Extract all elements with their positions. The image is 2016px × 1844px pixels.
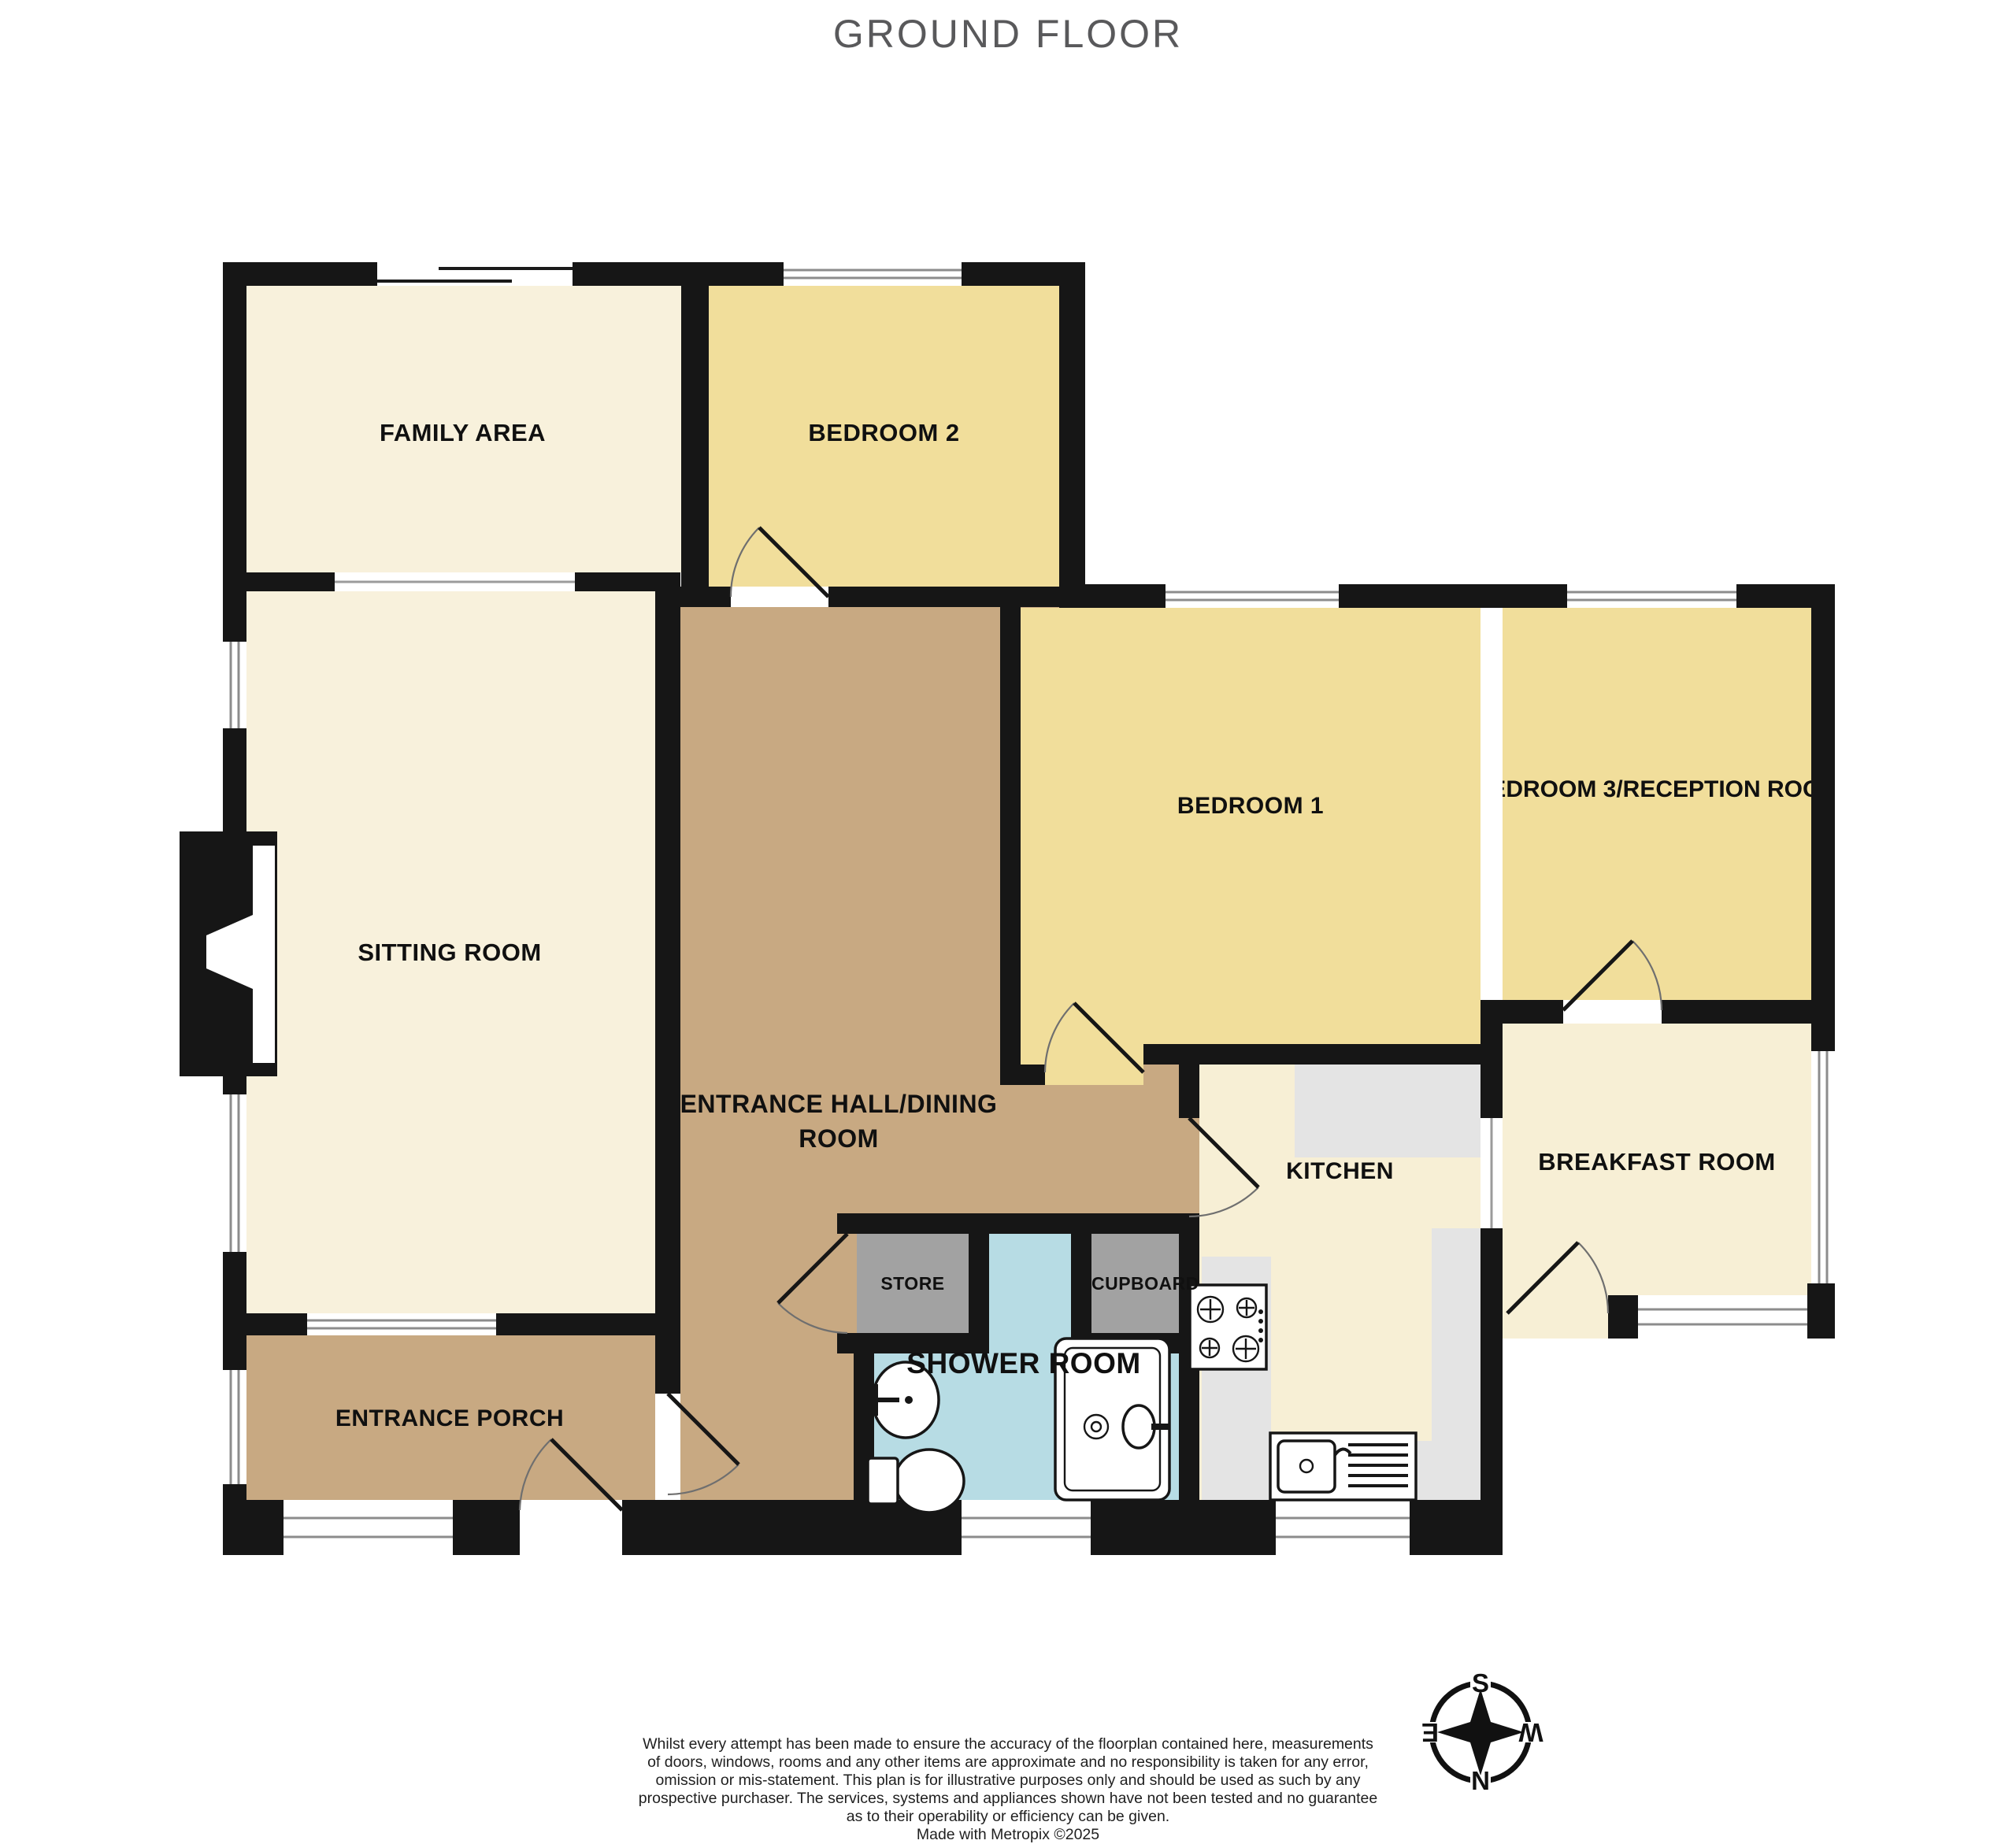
bedroom-3-label: BEDROOM 3/RECEPTION ROOM [1503,776,1811,803]
disclaimer-line: omission or mis-statement. This plan is … [0,1772,2016,1790]
toilet-icon [868,1450,964,1513]
disclaimer-line: prospective purchaser. The services, sys… [0,1790,2016,1808]
entrance-porch-label: ENTRANCE PORCH [244,1405,655,1433]
hob-icon [1190,1285,1266,1369]
store-label: STORE [857,1272,969,1294]
shower-room-label: SHOWER ROOM [866,1350,1181,1378]
bedroom-3-label-clip: BEDROOM 3/RECEPTION ROOM [1503,608,1811,1000]
page-title: GROUND FLOOR [0,11,2016,57]
entrance-hall-label: ENTRANCE HALL/DINING ROOM [583,1087,1095,1156]
disclaimer: Whilst every attempt has been made to en… [0,1735,2016,1844]
metropix-credit: Made with Metropix ©2025 [0,1826,2016,1844]
breakfast-room-label: BREAKFAST ROOM [1503,1148,1811,1176]
sink-icon [1270,1433,1416,1500]
bedroom-2-label: BEDROOM 2 [709,419,1059,447]
disclaimer-line: Whilst every attempt has been made to en… [0,1735,2016,1753]
sitting-room-label: SITTING ROOM [244,939,655,967]
shower-room-neck-floor [989,1234,1071,1353]
floorplan-page: GROUND FLOOR [0,0,2016,1844]
entrance-hall-label-line2: ROOM [583,1121,1095,1156]
bedroom-1-label: BEDROOM 1 [1021,792,1480,820]
disclaimer-line: of doors, windows, rooms and any other i… [0,1753,2016,1772]
entrance-hall-label-line1: ENTRANCE HALL/DINING [583,1087,1095,1121]
disclaimer-line: as to their operability or efficiency ca… [0,1808,2016,1826]
compass-south-label: S [1472,1668,1489,1698]
cupboard-label: CUPBOARD [1091,1272,1179,1294]
bedroom-1-floor [1021,608,1480,1044]
kitchen-counter-top [1295,1065,1480,1157]
family-area-label: FAMILY AREA [244,419,681,447]
kitchen-label: KITCHEN [1199,1157,1480,1186]
